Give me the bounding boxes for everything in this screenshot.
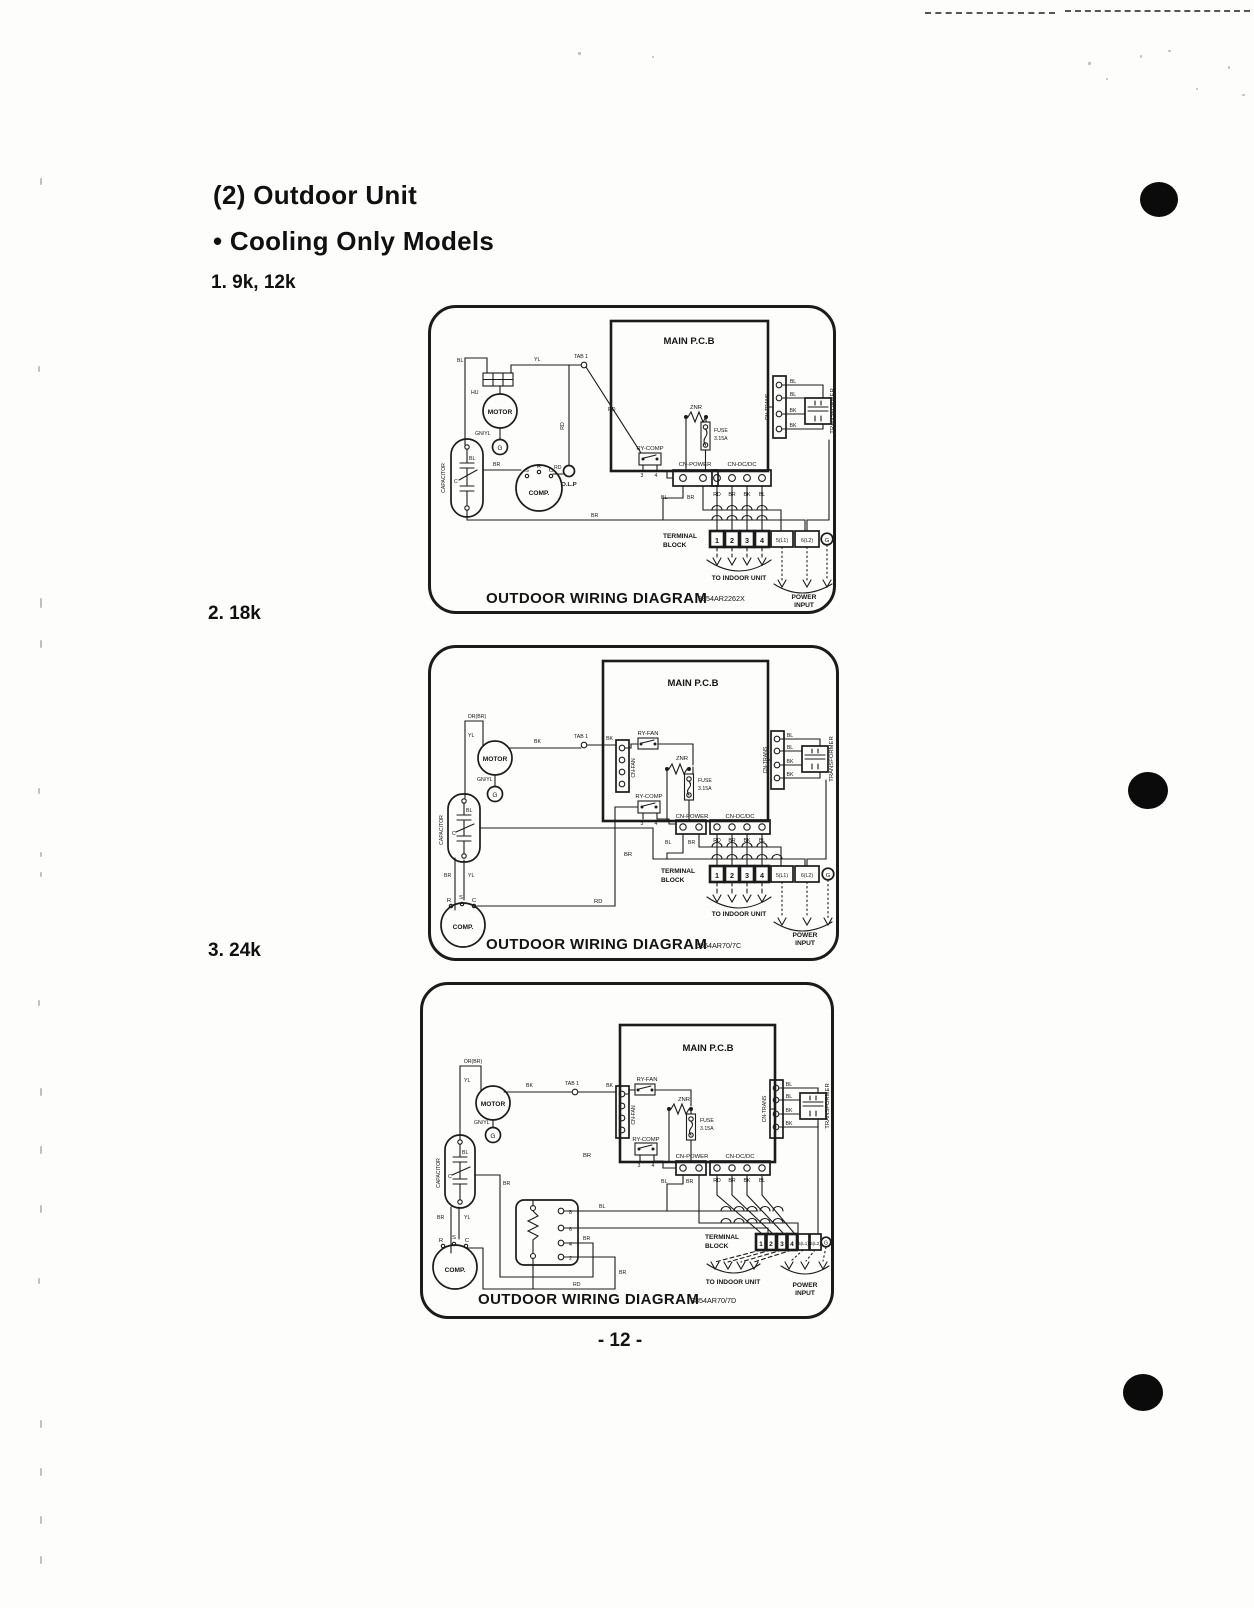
wire-label-yl: YL: [468, 873, 474, 879]
to-indoor-unit-arrows: TO INDOOR UNIT: [706, 1250, 792, 1286]
terminal-block: TERMINAL BLOCK 1 2 3 4 5(L1) 6(L2) G: [705, 1234, 831, 1250]
comp-terminal-s: S: [452, 1235, 456, 1241]
terminal-5L1: 5(L1): [776, 538, 788, 544]
power-input-label-2: INPUT: [794, 602, 814, 609]
main-pcb: MAIN P.C.B: [611, 321, 768, 471]
wire-label-bk: BK: [787, 759, 794, 765]
scan-speck: [40, 178, 42, 185]
scan-speck: [1140, 55, 1142, 58]
olp: O.L.P: [561, 466, 576, 489]
wire-label-bl: BL: [786, 1082, 792, 1088]
ry-fan-label: RY-FAN: [638, 731, 659, 737]
compressor: R S C COMP.: [433, 1235, 477, 1289]
power-input-label-2: INPUT: [795, 1290, 815, 1297]
transformer-label: TRANSFORMER: [830, 388, 833, 434]
wire-label-bk: BK: [786, 1121, 793, 1127]
terminal-3: 3: [745, 871, 749, 880]
fuse-label: FUSE: [714, 428, 728, 434]
contactor-pin: 2: [569, 1256, 572, 1262]
relay-pin-3: 3: [641, 821, 644, 827]
ry-comp-label: RY-COMP: [636, 446, 663, 452]
terminal-6L2: 6(L2): [810, 1241, 821, 1246]
contactor-pin: 8: [569, 1210, 572, 1216]
comp-label: COMP.: [529, 490, 550, 497]
wire-label-yl: YL: [534, 357, 540, 363]
cn-fan-label: CN-FAN: [631, 1105, 637, 1125]
cn-power-connector: CN-POWER: [676, 1154, 709, 1175]
comp-terminal-c: C: [472, 898, 477, 904]
wire-label-br: BR: [444, 873, 451, 879]
registration-dot: [1123, 1374, 1163, 1411]
fuse-rating: 3.15A: [714, 436, 728, 442]
comp-terminal-r: R: [447, 898, 451, 904]
wire-label-bk: BK: [744, 838, 751, 844]
wire-label-yl: YL: [464, 1215, 470, 1221]
scan-dash-line: [925, 12, 1055, 14]
main-pcb-label: MAIN P.C.B: [667, 678, 718, 689]
wire-label-bl: BL: [790, 379, 796, 385]
cn-fan-label: CN-FAN: [631, 758, 637, 778]
terminal-block-label-1: TERMINAL: [663, 533, 697, 540]
wire-label-br: BR: [728, 1178, 735, 1184]
power-input-arrows: POWER INPUT: [774, 545, 832, 609]
motor-label: MOTOR: [488, 409, 513, 416]
ground-label: G: [490, 1133, 495, 1140]
terminal-6L2: 6(L2): [801, 538, 813, 544]
scan-speck: [40, 852, 42, 857]
wire-label-bk: BK: [786, 1108, 793, 1114]
relay-pin-4: 4: [655, 821, 658, 827]
wire-label-gnyl: GN/YL: [475, 431, 491, 437]
capacitor: CAPACITOR BL C: [439, 794, 480, 862]
motor: MOTOR: [483, 373, 517, 428]
cn-dcdc-label: CN-DC/DC: [727, 462, 757, 468]
wire-label-bl: BL: [787, 733, 793, 739]
wire-label-yl: YL: [468, 733, 474, 739]
wire-label-br: BR: [686, 1179, 693, 1185]
manual-page: (2) Outdoor Unit • Cooling Only Models 1…: [0, 0, 1254, 1608]
wire-label-bl: BL: [661, 495, 667, 501]
power-input-label-1: POWER: [793, 932, 818, 939]
ground: G: [488, 787, 503, 802]
scan-speck: [1088, 62, 1091, 65]
wire-label-orbr: OR(BR): [468, 714, 487, 720]
ry-comp-label: RY-COMP: [635, 794, 662, 800]
terminal-1: 1: [759, 1241, 763, 1248]
znr-varistor: ZNR: [665, 756, 691, 774]
wire-label-bk: BK: [744, 492, 751, 498]
transformer-label: TRANSFORMER: [829, 736, 835, 782]
terminal-block: TERMINAL BLOCK 1 2 3 4 5(L1) 6(L2) G: [661, 866, 834, 884]
power-input-arrows: POWER INPUT: [774, 880, 832, 947]
cn-trans-connector: CN-TRANS: [763, 731, 784, 789]
tab1-node: [572, 1089, 578, 1095]
wire-label-rd: RD: [713, 838, 721, 844]
wire-label-bl: BL: [661, 1179, 667, 1185]
wiring-canvas-2: MAIN P.C.B: [431, 648, 836, 958]
to-indoor-unit-label: TO INDOOR UNIT: [712, 911, 766, 918]
ry-fan-label: RY-FAN: [637, 1077, 658, 1083]
hu-label: HU: [471, 390, 479, 396]
tab1-label: TAB 1: [565, 1081, 579, 1087]
terminal-2: 2: [730, 871, 734, 880]
cn-trans-label: CN-TRANS: [762, 1095, 768, 1122]
wire-label-bl: BL: [759, 838, 765, 844]
ground-label: G: [492, 792, 497, 799]
terminal-3: 3: [780, 1241, 784, 1248]
terminal-1: 1: [715, 536, 719, 545]
terminal-5L1: 5(L1): [776, 873, 788, 879]
to-indoor-unit-arrows: TO INDOOR UNIT: [707, 547, 771, 582]
znr-varistor: ZNR: [684, 405, 708, 422]
ry-fan-relay: RY-FAN: [638, 731, 659, 749]
transformer: BL BL BK BK TRANSFORMER: [790, 379, 833, 434]
diagram-caption: OUTDOOR WIRING DIAGRAM: [478, 1291, 699, 1308]
scan-speck: [40, 872, 42, 877]
to-indoor-unit-arrows: TO INDOOR UNIT: [707, 882, 771, 918]
wire-label-rd: RD: [554, 465, 562, 471]
motor: MOTOR: [476, 1086, 510, 1120]
scan-speck: [40, 1468, 42, 1476]
comp-terminal-r: R: [439, 1238, 443, 1244]
scan-speck: [38, 1000, 40, 1006]
cn-dcdc-label: CN-DC/DC: [725, 814, 755, 820]
wire-label-bl: BL: [759, 492, 765, 498]
terminal-ground: G: [824, 1241, 828, 1247]
wire-label-bk: BK: [526, 1083, 533, 1089]
page-number: - 12 -: [555, 1330, 685, 1352]
tab1-node: [581, 742, 587, 748]
fuse: FUSE 3.15A: [701, 422, 728, 450]
wire-label-gnyl: GN/YL: [474, 1120, 490, 1126]
diagram-caption: OUTDOOR WIRING DIAGRAM: [486, 590, 707, 607]
wire-label-br: BR: [591, 513, 598, 519]
wiring-diagram-24k: MAIN P.C.B: [420, 982, 834, 1319]
wiring-diagram-18k: MAIN P.C.B: [428, 645, 839, 961]
motor: MOTOR: [478, 741, 512, 775]
terminal-block-label-1: TERMINAL: [661, 868, 695, 875]
wire-label-rd: RD: [594, 899, 603, 905]
terminal-3: 3: [745, 536, 749, 545]
scan-speck: [40, 1420, 42, 1428]
wire-label-bk: BK: [744, 1178, 751, 1184]
comp-terminal-c: C: [465, 1238, 470, 1244]
diagram-caption: OUTDOOR WIRING DIAGRAM: [486, 936, 707, 953]
motor-label: MOTOR: [481, 1101, 506, 1108]
terminal-block: TERMINAL BLOCK 1 2 3 4 5(L1) 6(L2) G: [663, 531, 833, 549]
terminal-4: 4: [790, 1241, 794, 1248]
terminal-ground: G: [825, 538, 830, 544]
wire-label-bl: BL: [790, 392, 796, 398]
part-number: 5854AR70/7C: [696, 941, 741, 950]
scan-speck: [578, 52, 581, 55]
wire-label-bl: BL: [469, 456, 475, 462]
cn-trans-label: CN-TRANS: [765, 393, 771, 420]
terminal-ground: G: [826, 873, 831, 879]
tab1-label: TAB 1: [574, 354, 588, 360]
wire-label-rd: RD: [713, 492, 721, 498]
motor-label: MOTOR: [483, 756, 508, 763]
wire-label-rd: RD: [560, 422, 566, 430]
scan-speck: [40, 598, 42, 608]
capacitor-label: CAPACITOR: [439, 815, 445, 845]
terminal-block-label-1: TERMINAL: [705, 1234, 739, 1241]
znr-label: ZNR: [678, 1097, 690, 1103]
comp-terminal-s: S: [525, 468, 529, 474]
contactor: 8 6 4 2: [516, 1200, 578, 1265]
wire-label-bl: BL: [786, 1094, 792, 1100]
page-title: (2) Outdoor Unit: [213, 180, 417, 211]
scan-speck: [1242, 94, 1245, 96]
cn-dcdc-label: CN-DC/DC: [725, 1154, 755, 1160]
wire-label-br: BR: [687, 495, 694, 501]
contactor-pin: 6: [569, 1227, 572, 1233]
scan-speck: [1196, 88, 1198, 90]
transformer: BL BL BK BK TRANSFORMER: [786, 1082, 831, 1129]
scan-speck: [38, 788, 40, 794]
cn-dcdc-connector: CN-DC/DC: [710, 814, 770, 834]
wiring-canvas-1: MAIN P.C.B: [431, 308, 833, 611]
wires: [465, 358, 829, 531]
main-pcb-label: MAIN P.C.B: [682, 1043, 733, 1054]
terminal-block-label-2: BLOCK: [705, 1243, 729, 1250]
relay-pin-4: 4: [652, 1163, 655, 1169]
contactor-pin: 4: [569, 1242, 572, 1248]
comp-label: COMP.: [453, 924, 474, 931]
znr-varistor: ZNR: [667, 1097, 693, 1114]
wire-label-bl: BL: [787, 745, 793, 751]
to-indoor-unit-label: TO INDOOR UNIT: [712, 575, 766, 582]
terminal-2: 2: [730, 536, 734, 545]
compressor: R S C COMP.: [441, 895, 485, 947]
terminal-1: 1: [715, 871, 719, 880]
terminal-block-label-2: BLOCK: [663, 542, 687, 549]
scan-speck: [1168, 50, 1171, 52]
wire-label-rd: RD: [608, 407, 616, 413]
wire-label-bk: BK: [606, 736, 613, 742]
ry-fan-relay: RY-FAN: [635, 1077, 657, 1095]
cn-dcdc-connector: CN-DC/DC: [712, 462, 771, 486]
part-number: 3854AR2262X: [698, 594, 745, 603]
terminal-4: 4: [760, 536, 764, 545]
wire-label-c: C: [454, 479, 458, 485]
tab1-node: [581, 362, 587, 368]
comp-label: COMP.: [445, 1267, 466, 1274]
wire-label-bl: BL: [759, 1178, 765, 1184]
olp-label: O.L.P: [561, 482, 576, 488]
scan-speck: [40, 1556, 42, 1564]
power-input-arrows: POWER INPUT: [781, 1247, 829, 1297]
wire-label-br: BR: [624, 852, 632, 858]
wire-label-bl: BL: [457, 358, 463, 364]
wire-label-br: BR: [493, 462, 500, 468]
wire-label-br: BR: [583, 1236, 590, 1242]
capacitor: CAPACITOR BL C: [441, 439, 483, 517]
wire-label-bl: BL: [462, 1150, 468, 1156]
cn-power-label: CN-POWER: [676, 814, 709, 820]
scan-speck: [40, 1205, 42, 1213]
wire-label-gnyl: GN/YL: [477, 777, 493, 783]
cn-power-label: CN-POWER: [676, 1154, 709, 1160]
comp-terminal-s: S: [459, 895, 463, 901]
wire-label-br: BR: [728, 492, 735, 498]
scan-speck: [38, 366, 40, 372]
scan-dash-line: [1065, 10, 1250, 12]
scan-speck: [1106, 78, 1108, 80]
registration-dot: [1140, 182, 1178, 217]
terminal-5L1: 5(L1): [798, 1241, 809, 1246]
wire-label-br: BR: [688, 840, 695, 846]
relay-pin-3: 3: [641, 473, 644, 479]
registration-dot: [1128, 772, 1168, 809]
capacitor-label: CAPACITOR: [436, 1158, 442, 1188]
wire-label-bl: BL: [466, 808, 472, 814]
relay-pin-3: 3: [638, 1163, 641, 1169]
fuse: FUSE 3.15A: [687, 1114, 715, 1140]
wire-label-bk: BK: [790, 423, 797, 429]
scan-speck: [1228, 66, 1230, 69]
fuse: FUSE 3.15A: [685, 774, 713, 800]
main-pcb: MAIN P.C.B: [603, 661, 768, 821]
ry-comp-relay: RY-COMP 3 4: [636, 446, 663, 479]
scan-speck: [652, 56, 654, 58]
terminal-2: 2: [769, 1241, 773, 1248]
wire-label-rd: RD: [713, 1178, 721, 1184]
wire-label-yl: YL: [464, 1078, 470, 1084]
ground: G: [486, 1128, 501, 1143]
wire-label-c: C: [452, 831, 456, 837]
wire-label-bl: BL: [599, 1204, 605, 1210]
tab1-label: TAB 1: [574, 734, 588, 740]
power-input-label-1: POWER: [792, 594, 817, 601]
section-heading-18k: 2. 18k: [208, 603, 261, 625]
znr-label: ZNR: [676, 756, 688, 762]
power-input-label-2: INPUT: [795, 940, 815, 947]
wire-label-bk: BK: [606, 1083, 613, 1089]
cn-dcdc-connector: CN-DC/DC: [710, 1154, 770, 1175]
power-input-label-1: POWER: [793, 1282, 818, 1289]
to-indoor-unit-label: TO INDOOR UNIT: [706, 1279, 760, 1286]
ground: G: [493, 440, 508, 455]
ground-label: G: [497, 445, 502, 452]
znr-label: ZNR: [690, 405, 702, 411]
section-heading-9k-12k: 1. 9k, 12k: [211, 272, 296, 294]
wire-label-orbr: OR(BR): [464, 1059, 483, 1065]
transformer: BL BL BK BK TRANSFORMER: [787, 733, 835, 782]
main-pcb-label: MAIN P.C.B: [663, 336, 714, 347]
terminal-6L2: 6(L2): [801, 873, 813, 879]
wire-label-c: C: [448, 1174, 452, 1180]
relay-pin-4: 4: [655, 473, 658, 479]
scan-speck: [40, 1516, 42, 1524]
compressor: S R C COMP.: [516, 464, 562, 511]
page-subtitle: • Cooling Only Models: [213, 226, 494, 257]
cn-power-label: CN-POWER: [679, 462, 712, 468]
terminal-block-label-2: BLOCK: [661, 877, 685, 884]
wire-label-br: BR: [619, 1270, 626, 1276]
scan-speck: [40, 1146, 42, 1154]
capacitor-label: CAPACITOR: [441, 463, 447, 493]
wire-label-bk: BK: [790, 408, 797, 414]
terminal-4: 4: [760, 871, 764, 880]
wiring-diagram-9k-12k: MAIN P.C.B: [428, 305, 836, 614]
scan-speck: [40, 1088, 42, 1096]
wire-label-br: BR: [583, 1153, 591, 1159]
comp-terminal-r: R: [537, 464, 541, 470]
cn-power-connector: CN-POWER: [676, 814, 709, 834]
wire-label-br: BR: [437, 1215, 444, 1221]
wire-label-rd: RD: [573, 1282, 581, 1288]
cn-trans-label: CN-TRANS: [763, 746, 769, 773]
wire-label-br: BR: [503, 1181, 510, 1187]
wire-label-br: BR: [728, 838, 735, 844]
transformer-label: TRANSFORMER: [825, 1083, 831, 1129]
wiring-canvas-3: MAIN P.C.B: [423, 985, 831, 1316]
section-heading-24k: 3. 24k: [208, 940, 261, 962]
part-number: 3854AR70/7D: [691, 1296, 736, 1305]
ry-comp-relay: RY-COMP 3 4: [632, 1137, 659, 1169]
wire-label-bk: BK: [787, 772, 794, 778]
scan-speck: [38, 1278, 40, 1284]
ry-comp-label: RY-COMP: [632, 1137, 659, 1143]
wire-label-bk: BK: [534, 739, 541, 745]
scan-speck: [40, 640, 42, 648]
wire-label-bl: BL: [665, 840, 671, 846]
fuse-rating: 3.15A: [698, 786, 712, 792]
fuse-label: FUSE: [700, 1118, 714, 1124]
fuse-rating: 3.15A: [700, 1126, 714, 1132]
fuse-label: FUSE: [698, 778, 712, 784]
capacitor: CAPACITOR BL C: [436, 1135, 475, 1208]
